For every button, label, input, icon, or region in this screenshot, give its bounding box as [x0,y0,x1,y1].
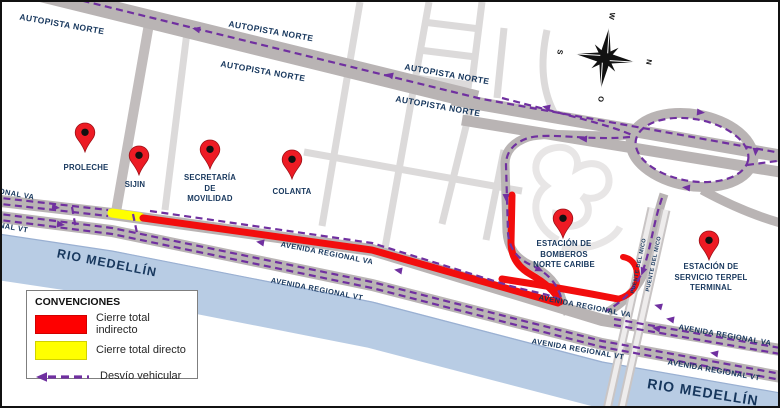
legend-box: CONVENCIONES Cierre total indirectoCierr… [26,290,198,379]
legend-item: Cierre total indirecto [35,314,189,334]
road-closure-map: AUTOPISTA NORTEAUTOPISTA NORTEAUTOPISTA … [0,0,780,408]
legend-item: Cierre total directo [35,340,189,360]
legend-swatch-icon [35,315,87,334]
legend-swatch-icon [35,341,87,360]
compass-right-letter: N [644,59,654,66]
legend-title: CONVENCIONES [35,296,189,308]
legend-dashed-arrow-icon [35,370,91,382]
compass-left-letter: S [555,49,565,56]
compass-top-letter: W [607,12,617,21]
legend-item-label: Cierre total directo [96,344,186,356]
legend-item-label: Desvío vehicular [100,370,181,382]
compass-bottom-letter: O [596,95,606,102]
legend-item: Desvío vehicular [35,366,189,386]
legend-item-label: Cierre total indirecto [96,312,189,336]
